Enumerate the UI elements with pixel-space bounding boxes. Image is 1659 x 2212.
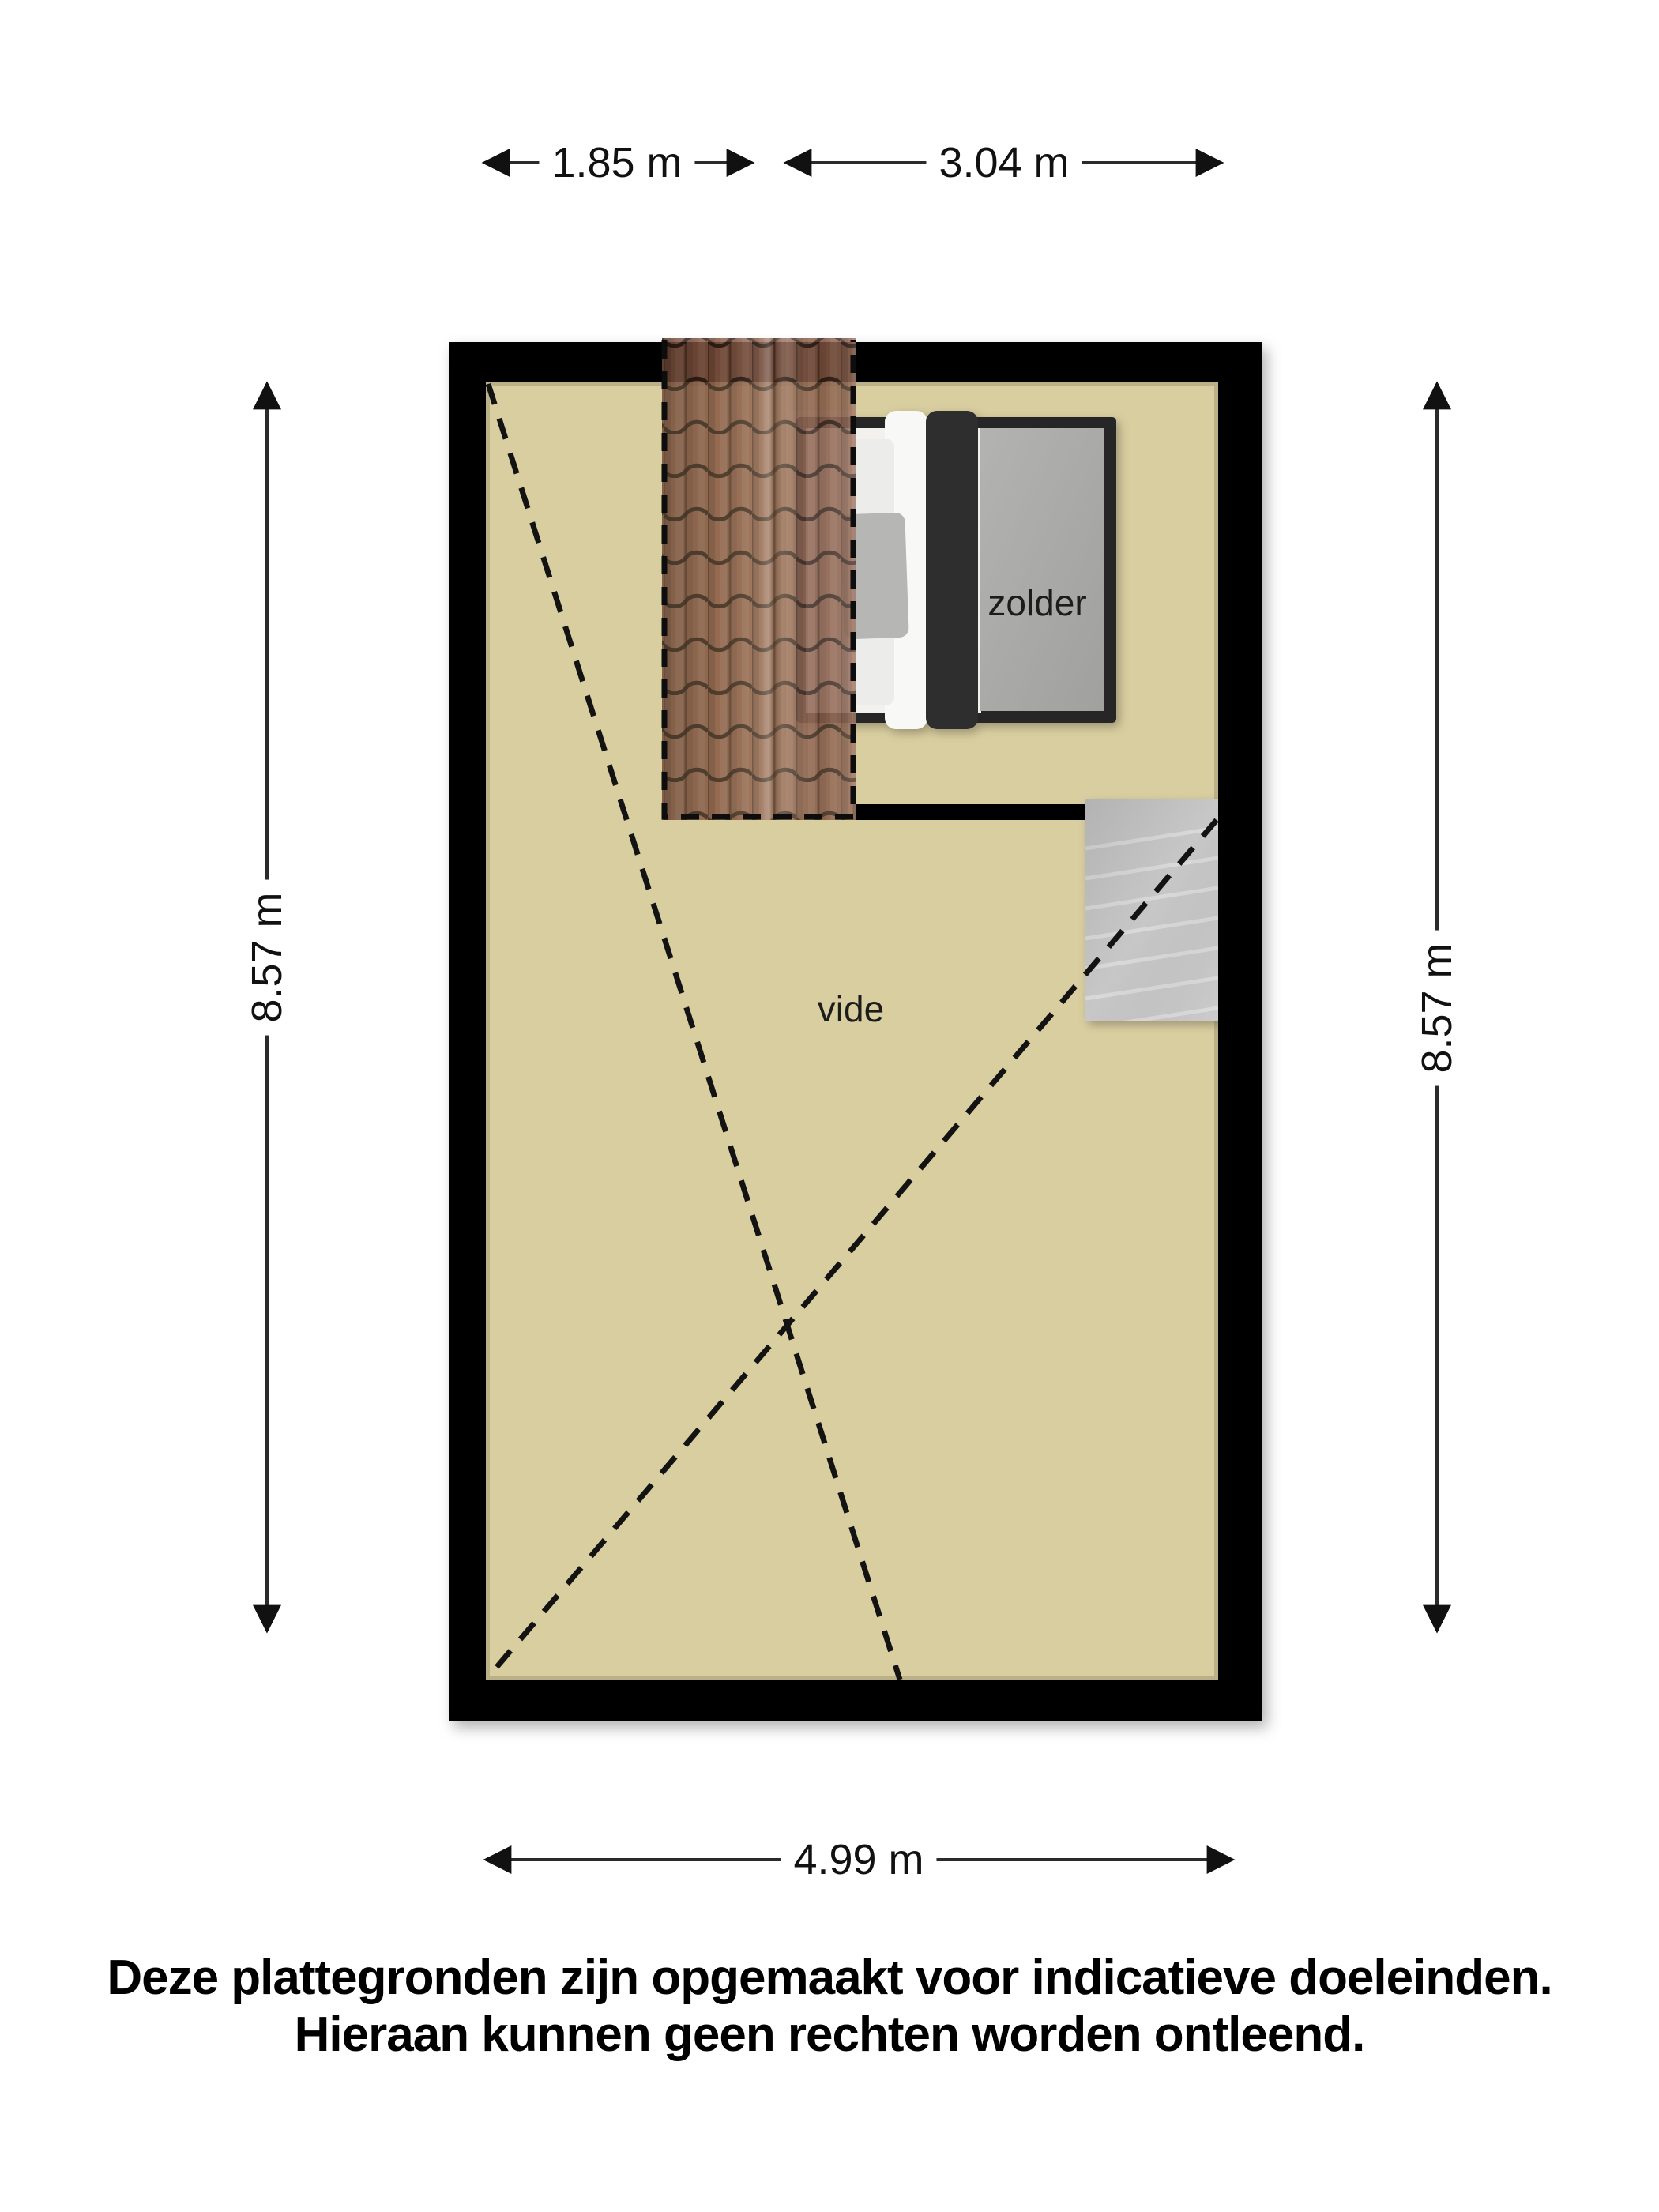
dimension-label-right: 8.57 m [1411, 930, 1463, 1085]
dimension-label-bottom: 4.99 m [781, 1834, 936, 1886]
dimension-label-top-right: 3.04 m [926, 137, 1082, 189]
room-label-vide: vide [818, 987, 884, 1030]
dimension-label-left: 8.57 m [241, 879, 293, 1035]
bed-runner-dark [926, 411, 978, 729]
disclaimer-line-2: Hieraan kunnen geen rechten worden ontle… [0, 2007, 1659, 2063]
roof-tile-overlay [662, 338, 856, 820]
staircase [1085, 799, 1218, 1029]
dimension-label-top-left: 1.85 m [539, 137, 694, 189]
bed-duvet-gray [980, 428, 1104, 711]
staircase-shading [1085, 799, 1218, 1021]
disclaimer-line-1: Deze plattegronden zijn opgemaakt voor i… [0, 1950, 1659, 2007]
floorplan-page: 1.85 m 3.04 m 4.99 m 8.57 m 8.57 m zolde… [0, 0, 1659, 2212]
disclaimer: Deze plattegronden zijn opgemaakt voor i… [0, 1950, 1659, 2063]
inner-wall [852, 804, 1085, 820]
room-label-zolder: zolder [987, 581, 1086, 624]
